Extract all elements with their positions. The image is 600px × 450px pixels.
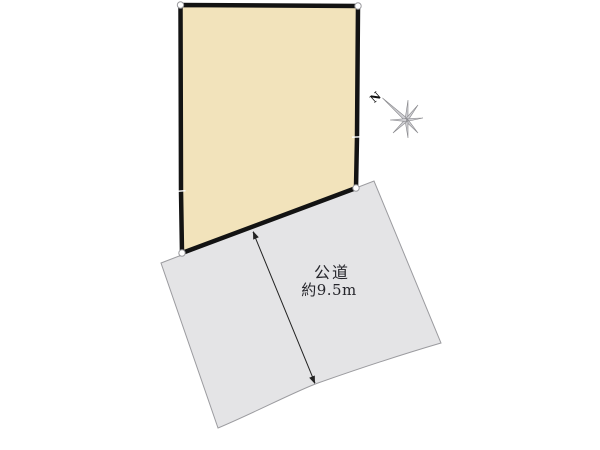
- road-label: 公道: [314, 263, 350, 282]
- compass-ray: [390, 119, 407, 122]
- corner-marker: [353, 185, 359, 191]
- plot-layout-diagram: 公道 約9.5m N: [0, 0, 600, 450]
- corner-marker: [177, 2, 183, 8]
- boundary-joint-gap-left: [177, 191, 186, 192]
- north-label: N: [368, 89, 384, 105]
- road-width-label: 約9.5m: [301, 281, 357, 299]
- compass-ray-north: [383, 98, 408, 121]
- corner-marker: [355, 3, 361, 9]
- plot-layout-svg: 公道 約9.5m N: [0, 0, 600, 450]
- corner-marker: [179, 250, 185, 256]
- compass-rose-icon: [383, 98, 424, 138]
